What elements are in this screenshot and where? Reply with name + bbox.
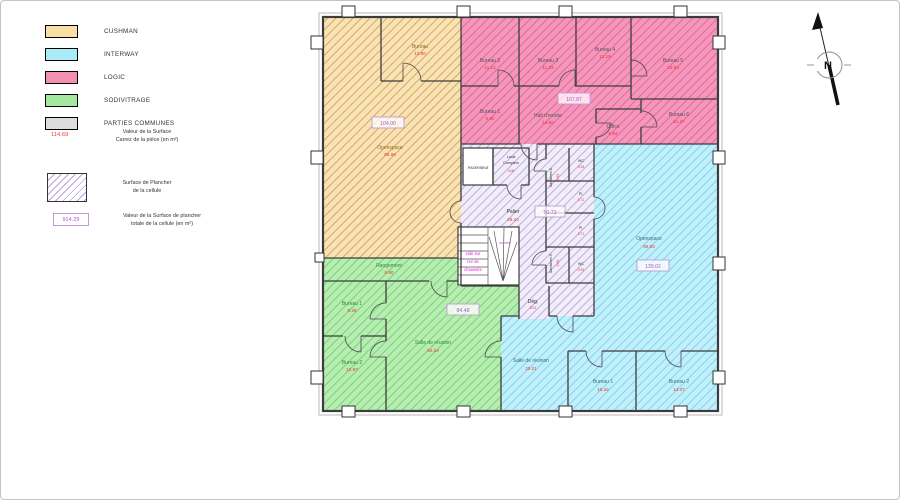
room-name-label: Bureau 4 [595,47,616,53]
void-note-line1: vide sur [466,251,481,256]
room-area-label: 2.63 [556,260,560,267]
north-label: N [824,60,832,72]
room-area-label: 0.93 [578,165,585,169]
room-area-label: 5.84 [609,131,618,136]
legend-label: SODIVITRAGE [104,97,150,104]
void-note-line3: chaussée [464,267,483,272]
room-area-label: 16.50 [542,120,554,125]
room-area-label: 20.21 [525,366,537,371]
room-name-label: Hall d'entrée [534,113,562,119]
void-note-line2: rez de [467,259,479,264]
room-area-label: 9.90 [486,116,495,121]
room-name-label: Bureau 1 [342,301,363,307]
column [713,257,725,270]
carrez-note-line2: Carrez de la pièce (en m²) [87,136,207,144]
north-arrow-head [812,12,823,30]
room-name-label: Office [607,124,620,130]
column [342,6,355,17]
room-name-label: WC [578,159,584,163]
room-area-label: 28.44 [507,217,519,222]
room-name-label: Salle de réunion [513,358,549,364]
zone-cushman [323,17,461,258]
room-name-label: Openspace [636,236,662,242]
column [311,36,323,49]
room-area-label: 8.26 [348,308,357,313]
legend-item-logic: LOGIC [45,71,125,84]
room-name-label: Openspace [377,145,403,151]
room-area-label: 90.83 [643,244,655,249]
column [457,6,470,17]
plancher-hatch-swatch [47,173,87,202]
room-area-label: 12.19 [599,54,611,59]
room-name-label: Bureau 1 [593,379,614,385]
room-area-label: 86.96 [384,152,396,157]
zone-logic [461,17,718,144]
column [457,406,470,417]
floorplan-canvas: CUSHMAN INTERWAY LOGIC SODIVITRAGE PARTI… [0,0,900,500]
carrez-note: Valeur de la Surface Carrez de la pièce … [87,128,207,144]
room-name-label: Bureau 2 [669,379,690,385]
zone-fills [323,17,718,411]
zone-total-value: 104.00 [380,121,396,127]
room-area-label: 4.06 [508,169,515,173]
room-area-label: 0.71 [578,232,585,236]
legend-label: LOGIC [104,74,125,81]
room-area-label: 13.87 [346,367,358,372]
legend: CUSHMAN INTERWAY LOGIC SODIVITRAGE PARTI… [45,11,275,246]
room-area-label: 10.42 [597,387,609,392]
legend-item-cushman: CUSHMAN [45,25,138,38]
room-name-label: Bureau [412,44,428,50]
column [713,151,725,164]
cushman-color-swatch [45,25,78,38]
room-name-label: Rangement [376,263,402,269]
plancher-note-line2: de la cellule [87,187,207,195]
plancher-total-sample: 914.29 [53,213,89,226]
column [342,406,355,417]
stair-direction-note: montée [499,241,511,245]
room-name-label: Bureau 6 [669,112,690,118]
interway-color-swatch [45,48,78,61]
room-name-label: Sanitaires D. [549,167,553,188]
room-area-label: 0.93 [578,268,585,272]
room-name-label: Sanitaires H. [549,253,553,274]
column [311,151,323,164]
carrez-sample-value: 114.69 [51,132,68,138]
room-area-label: 11.27 [673,119,685,124]
communes-color-swatch [45,117,78,130]
room-name-label: Palier [507,209,520,215]
room-area-label: 14.07 [673,387,685,392]
column [311,371,323,384]
logic-color-swatch [45,71,78,84]
room-name-label: Dég. [528,299,539,305]
carrez-note-line1: Valeur de la Surface [87,128,207,136]
room-area-label: 13.90 [414,51,426,56]
plancher-total-note: Valeur de la Surface de plancher totale … [87,212,237,228]
column [559,406,572,417]
room-area-label: 11.13 [484,65,496,70]
room-name-label: WC [578,262,584,266]
room-name-label: Bureau 1 [480,109,501,115]
zone-total-value: 139.02 [645,264,661,270]
room-area-label: 50.24 [427,348,439,353]
zone-total-value: 50.73 [544,210,557,216]
plancher-total-line2: totale de la cellule (en m²) [87,220,237,228]
column [674,406,687,417]
column [713,36,725,49]
north-arrow: N [807,12,851,105]
legend-label: CUSHMAN [104,28,138,35]
room-area-label: 2.63 [556,174,560,181]
plancher-note-line1: Surface de Plancher [87,179,207,187]
sodivitrage-color-swatch [45,94,78,107]
room-name-label: Local [507,155,516,159]
legend-item-sodivitrage: SODIVITRAGE [45,94,150,107]
legend-label: INTERWAY [104,51,139,58]
column [315,253,324,262]
room-area-label: 11.33 [542,65,554,70]
room-name-label: Pl. [579,226,583,230]
zone-total-value: 107.87 [566,97,582,103]
room-name-label: Pl. [579,192,583,196]
room-name-label: Salle de réunion [415,340,451,346]
room-name-label: Bureau 3 [538,58,559,64]
plancher-total-line1: Valeur de la Surface de plancher [87,212,237,220]
zone-total-value: 84.48 [457,308,470,314]
room-area-label: 10.83 [667,65,679,70]
legend-label: PARTIES COMMUNES [104,120,174,127]
room-area-label: 8.90 [385,270,394,275]
room-area-label: 5.01 [530,306,537,310]
column [713,371,725,384]
column [674,6,687,17]
room-name-label: Bureau 2 [342,360,363,366]
legend-item-interway: INTERWAY [45,48,139,61]
room-name-label: Bureau 2 [480,58,501,64]
room-name-label: Bureau 5 [663,58,684,64]
room-area-label: 0.71 [578,198,585,202]
room-name-label: Compteur [503,161,520,165]
stairwell [458,227,519,285]
plancher-note: Surface de Plancher de la cellule [87,179,207,195]
column [559,6,572,17]
room-name-label: Ascenseur [468,165,489,170]
